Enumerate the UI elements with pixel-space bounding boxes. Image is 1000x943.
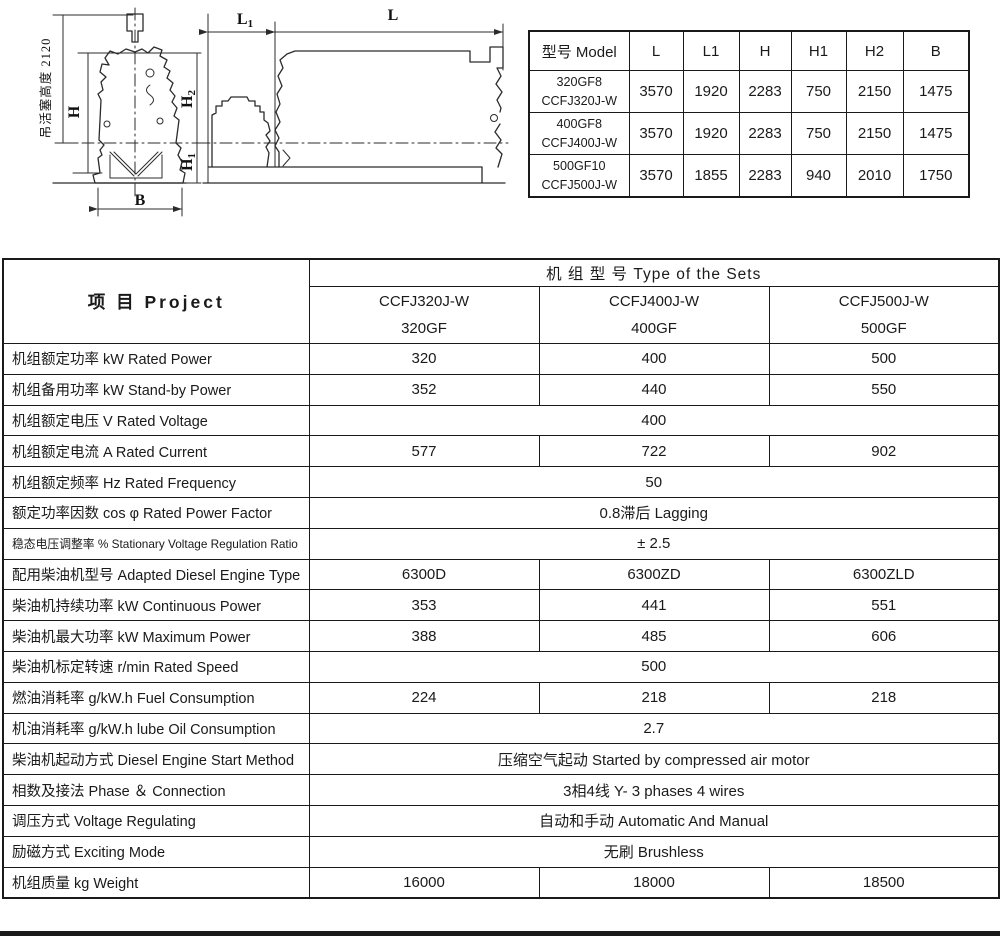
spec-span-cell: 自动和手动 Automatic And Manual xyxy=(309,805,999,836)
base-skid xyxy=(203,167,505,183)
spec-row-label: 机组质量 kg Weight xyxy=(3,867,309,898)
spec-value-cell: 320 xyxy=(309,344,539,375)
dims-header-h1: H1 xyxy=(791,31,846,71)
spec-row-label: 励磁方式 Exciting Mode xyxy=(3,836,309,867)
dim-l1-label: L1 xyxy=(237,11,253,30)
spec-span-cell: ± 2.5 xyxy=(309,528,999,559)
spec-model-header: CCFJ320J-W320GF xyxy=(309,287,539,344)
spec-row-label: 机组额定电流 A Rated Current xyxy=(3,436,309,467)
spec-value-cell: 485 xyxy=(539,621,769,652)
spec-span-cell: 无刷 Brushless xyxy=(309,836,999,867)
spec-row-label: 额定功率因数 cos φ Rated Power Factor xyxy=(3,497,309,528)
dims-header-l1: L1 xyxy=(683,31,739,71)
spec-row: 相数及接法 Phase ＆ Connection3相4线 Y- 3 phases… xyxy=(3,775,999,806)
spec-row-label: 柴油机标定转速 r/min Rated Speed xyxy=(3,651,309,682)
spec-row-label: 柴油机最大功率 kW Maximum Power xyxy=(3,621,309,652)
dim-h-label: H xyxy=(66,105,83,118)
dims-header-model: 型号 Model xyxy=(529,31,629,71)
spec-value-cell: 400 xyxy=(539,344,769,375)
dims-value-cell: 1475 xyxy=(903,113,969,155)
spec-value-cell: 6300ZD xyxy=(539,559,769,590)
engine-front-outline xyxy=(93,47,185,183)
spec-row-label: 机组额定电压 V Rated Voltage xyxy=(3,405,309,436)
spec-value-cell: 224 xyxy=(309,682,539,713)
spec-row-label: 机组备用功率 kW Stand-by Power xyxy=(3,374,309,405)
spec-row: 额定功率因数 cos φ Rated Power Factor0.8滞后 Lag… xyxy=(3,497,999,528)
alternator-outline xyxy=(212,97,270,167)
spec-value-cell: 6300ZLD xyxy=(769,559,999,590)
spec-model-header: CCFJ500J-W500GF xyxy=(769,287,999,344)
spec-row: 机组质量 kg Weight160001800018500 xyxy=(3,867,999,898)
dim-l-label: L xyxy=(388,7,399,24)
front-detail-squiggle xyxy=(147,85,154,105)
dimensions-table: 型号 ModelLL1HH1H2B 320GF8CCFJ320J-W357019… xyxy=(528,30,970,198)
spec-model-header: CCFJ400J-W400GF xyxy=(539,287,769,344)
spec-row: 机组额定频率 Hz Rated Frequency50 xyxy=(3,467,999,498)
dims-value-cell: 2150 xyxy=(846,113,903,155)
side-view-drawing: L1 L xyxy=(198,7,508,183)
sets-header: 机 组 型 号 Type of the Sets xyxy=(309,259,999,287)
spec-value-cell: 550 xyxy=(769,374,999,405)
spec-row-label: 稳态电压调整率 % Stationary Voltage Regulation … xyxy=(3,528,309,559)
dims-value-cell: 2283 xyxy=(739,113,791,155)
spec-value-cell: 18000 xyxy=(539,867,769,898)
project-header: 项 目 Project xyxy=(3,259,309,344)
dims-value-cell: 1920 xyxy=(683,71,739,113)
dims-value-cell: 2150 xyxy=(846,71,903,113)
dims-header-l: L xyxy=(629,31,683,71)
dims-model-cell: 500GF10CCFJ500J-W xyxy=(529,155,629,198)
spec-header-row-1: 项 目 Project 机 组 型 号 Type of the Sets xyxy=(3,259,999,287)
dims-row: 500GF10CCFJ500J-W35701855228394020101750 xyxy=(529,155,969,198)
spec-value-cell: 352 xyxy=(309,374,539,405)
spec-value-cell: 18500 xyxy=(769,867,999,898)
dims-header-b: B xyxy=(903,31,969,71)
dim-b-label: B xyxy=(135,192,146,209)
datasheet-page: 吊活塞高度 2120 H H2 H1 xyxy=(0,0,1000,943)
spec-span-cell: 50 xyxy=(309,467,999,498)
spec-body: 机组额定功率 kW Rated Power320400500机组备用功率 kW … xyxy=(3,344,999,899)
side-detail-bracket xyxy=(283,150,290,166)
dims-model-cell: 400GF8CCFJ400J-W xyxy=(529,113,629,155)
spec-value-cell: 218 xyxy=(539,682,769,713)
spec-span-cell: 0.8滞后 Lagging xyxy=(309,497,999,528)
spec-value-cell: 440 xyxy=(539,374,769,405)
spec-span-cell: 2.7 xyxy=(309,713,999,744)
spec-value-cell: 577 xyxy=(309,436,539,467)
spec-value-cell: 500 xyxy=(769,344,999,375)
spec-row: 机组备用功率 kW Stand-by Power352440550 xyxy=(3,374,999,405)
dims-value-cell: 1855 xyxy=(683,155,739,198)
dims-value-cell: 3570 xyxy=(629,155,683,198)
dims-value-cell: 2283 xyxy=(739,71,791,113)
spec-value-cell: 551 xyxy=(769,590,999,621)
spec-row-label: 机组额定功率 kW Rated Power xyxy=(3,344,309,375)
front-view-drawing: 吊活塞高度 2120 H H2 H1 xyxy=(38,8,201,216)
front-detail-hole-2 xyxy=(104,121,110,127)
spec-row: 稳态电压调整率 % Stationary Voltage Regulation … xyxy=(3,528,999,559)
spec-row-label: 调压方式 Voltage Regulating xyxy=(3,805,309,836)
spec-row: 柴油机最大功率 kW Maximum Power388485606 xyxy=(3,621,999,652)
dims-value-cell: 3570 xyxy=(629,71,683,113)
spec-value-cell: 388 xyxy=(309,621,539,652)
dims-model-cell: 320GF8CCFJ320J-W xyxy=(529,71,629,113)
dims-value-cell: 1750 xyxy=(903,155,969,198)
dim-h2-label: H2 xyxy=(179,90,198,108)
spec-span-cell: 500 xyxy=(309,651,999,682)
spec-row: 机组额定电流 A Rated Current577722902 xyxy=(3,436,999,467)
dim-h1-label: H1 xyxy=(179,153,198,171)
lift-dimension-lines xyxy=(53,15,133,143)
spec-row-label: 机油消耗率 g/kW.h lube Oil Consumption xyxy=(3,713,309,744)
dims-row: 320GF8CCFJ320J-W35701920228375021501475 xyxy=(529,71,969,113)
front-detail-hole-3 xyxy=(157,118,163,124)
piston-lift-height-label: 吊活塞高度 2120 xyxy=(38,38,53,139)
spec-span-cell: 400 xyxy=(309,405,999,436)
spec-row: 柴油机起动方式 Diesel Engine Start Method压缩空气起动… xyxy=(3,744,999,775)
dim-l-boundaries xyxy=(208,14,503,183)
outline-drawings: 吊活塞高度 2120 H H2 H1 xyxy=(0,0,520,240)
dims-value-cell: 750 xyxy=(791,71,846,113)
spec-row: 配用柴油机型号 Adapted Diesel Engine Type6300D6… xyxy=(3,559,999,590)
spec-table: 项 目 Project 机 组 型 号 Type of the Sets CCF… xyxy=(2,258,1000,899)
spec-span-cell: 3相4线 Y- 3 phases 4 wires xyxy=(309,775,999,806)
spec-row: 机组额定电压 V Rated Voltage400 xyxy=(3,405,999,436)
spec-row-label: 机组额定频率 Hz Rated Frequency xyxy=(3,467,309,498)
dims-value-cell: 3570 xyxy=(629,113,683,155)
dims-row: 400GF8CCFJ400J-W35701920228375021501475 xyxy=(529,113,969,155)
dims-value-cell: 2283 xyxy=(739,155,791,198)
spec-value-cell: 218 xyxy=(769,682,999,713)
dims-value-cell: 1920 xyxy=(683,113,739,155)
spec-value-cell: 606 xyxy=(769,621,999,652)
front-detail-hole-1 xyxy=(146,69,154,77)
spec-row: 调压方式 Voltage Regulating自动和手动 Automatic A… xyxy=(3,805,999,836)
spec-value-cell: 16000 xyxy=(309,867,539,898)
spec-value-cell: 353 xyxy=(309,590,539,621)
spec-value-cell: 902 xyxy=(769,436,999,467)
spec-row-label: 相数及接法 Phase ＆ Connection xyxy=(3,775,309,806)
spec-row-label: 柴油机持续功率 kW Continuous Power xyxy=(3,590,309,621)
engine-side-outline xyxy=(275,47,503,167)
dims-value-cell: 750 xyxy=(791,113,846,155)
spec-value-cell: 722 xyxy=(539,436,769,467)
bottom-rule xyxy=(0,931,1000,936)
spec-row-label: 配用柴油机型号 Adapted Diesel Engine Type xyxy=(3,559,309,590)
side-detail-hole xyxy=(491,115,498,122)
spec-row: 柴油机标定转速 r/min Rated Speed500 xyxy=(3,651,999,682)
spec-row: 机组额定功率 kW Rated Power320400500 xyxy=(3,344,999,375)
spec-row-label: 燃油消耗率 g/kW.h Fuel Consumption xyxy=(3,682,309,713)
spec-value-cell: 441 xyxy=(539,590,769,621)
spec-row: 励磁方式 Exciting Mode无刷 Brushless xyxy=(3,836,999,867)
dims-header-h: H xyxy=(739,31,791,71)
dims-value-cell: 2010 xyxy=(846,155,903,198)
spec-row: 柴油机持续功率 kW Continuous Power353441551 xyxy=(3,590,999,621)
dims-body: 320GF8CCFJ320J-W357019202283750215014754… xyxy=(529,71,969,198)
spec-row: 燃油消耗率 g/kW.h Fuel Consumption224218218 xyxy=(3,682,999,713)
spec-row-label: 柴油机起动方式 Diesel Engine Start Method xyxy=(3,744,309,775)
spec-row: 机油消耗率 g/kW.h lube Oil Consumption2.7 xyxy=(3,713,999,744)
base-braces xyxy=(110,152,162,178)
dims-header-h2: H2 xyxy=(846,31,903,71)
dims-header-row: 型号 ModelLL1HH1H2B xyxy=(529,31,969,71)
spec-value-cell: 6300D xyxy=(309,559,539,590)
spec-span-cell: 压缩空气起动 Started by compressed air motor xyxy=(309,744,999,775)
dims-value-cell: 1475 xyxy=(903,71,969,113)
dims-value-cell: 940 xyxy=(791,155,846,198)
